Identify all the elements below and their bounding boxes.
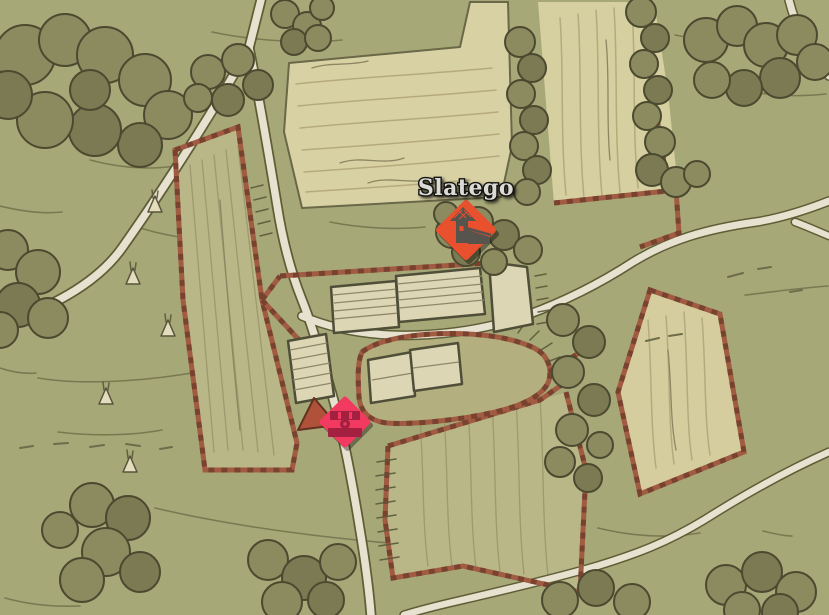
long-barn-east xyxy=(396,268,485,322)
west-house xyxy=(288,334,334,403)
long-barn-west xyxy=(331,281,399,333)
yard-cottage-west xyxy=(368,352,415,403)
location-label: Slatego xyxy=(418,175,514,201)
game-map-view[interactable]: Slatego xyxy=(0,0,829,615)
